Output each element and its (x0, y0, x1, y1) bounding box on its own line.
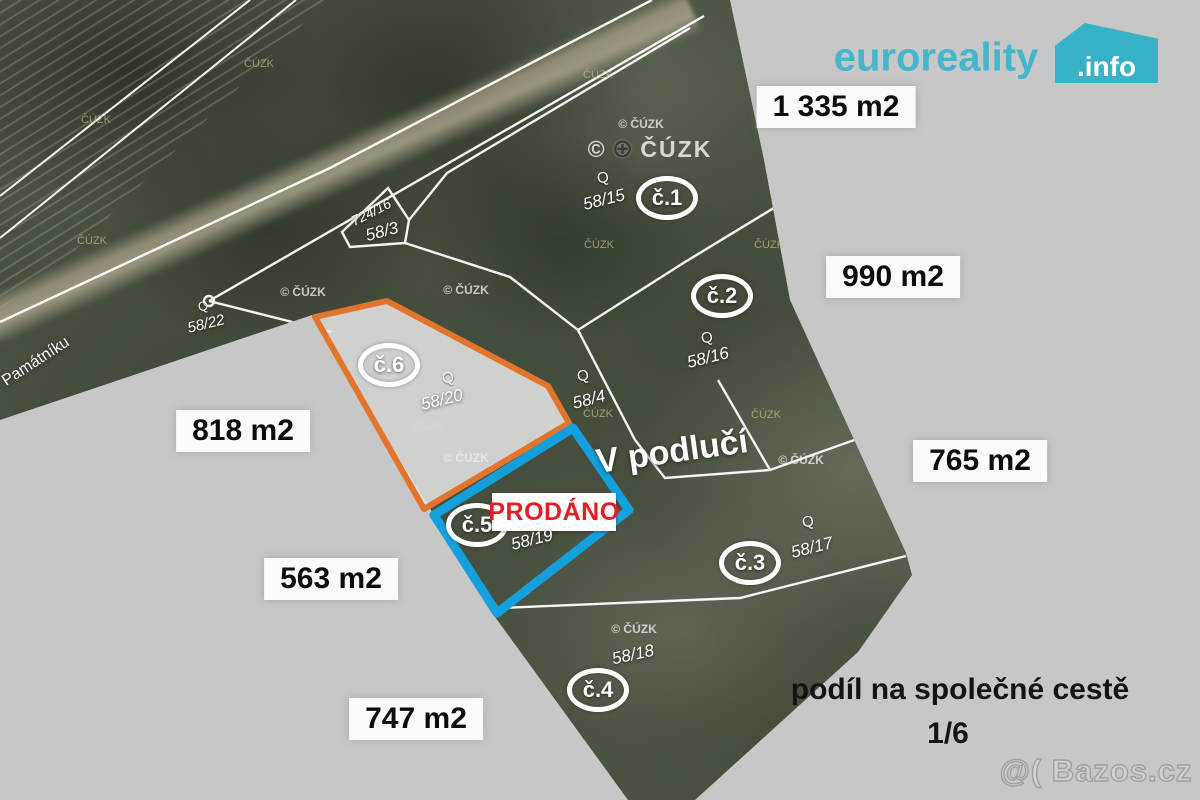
cuzk-watermark: © ČÚZK (443, 451, 489, 465)
globe-icon: ⊕ (612, 134, 636, 164)
listing-photo: ©⊕ČÚZK © ČÚZK © ČÚZK © ČÚZK © ČÚZK © ČÚZ… (0, 0, 1200, 800)
area-label: 818 m2 (176, 410, 310, 452)
cuzk-watermark: © ČÚZK (778, 453, 824, 467)
plot-circle-text: č.6 (374, 352, 405, 378)
cuzk-watermark: © ČÚZK (280, 285, 326, 299)
cuzk-watermark: ČÚZK (584, 239, 614, 251)
share-note-line2: 1/6 (927, 717, 969, 751)
plot-circle-label: č.1 (636, 176, 698, 220)
area-label: 1 335 m2 (757, 86, 916, 128)
cuzk-watermark: ČÚZK (583, 69, 613, 81)
share-note-line1: podíl na společné cestě (791, 673, 1129, 707)
cuzk-watermark: ČÚZK (754, 239, 784, 251)
cuzk-watermark: © ČÚZK (443, 283, 489, 297)
cuzk-watermark: © ČÚZK (618, 117, 664, 131)
cuzk-watermark: ČÚZK (244, 58, 274, 70)
plot-circle-label: č.2 (691, 274, 753, 318)
cuzk-watermark: ČÚZK (81, 114, 111, 126)
logo-euroreality-text: euroreality (834, 36, 1039, 81)
plot-circle-text: č.3 (735, 550, 766, 576)
area-label: 563 m2 (264, 558, 398, 600)
area-label: 990 m2 (826, 256, 960, 298)
logo-tld: .info (1077, 51, 1136, 83)
area-label: 747 m2 (349, 698, 483, 740)
cuzk-watermark: ČÚZK (77, 235, 107, 247)
cuzk-watermark: © ČÚZK (611, 622, 657, 636)
cuzk-watermark: ©⊕ČÚZK (588, 134, 713, 164)
sold-text: PRODÁNO (488, 498, 619, 527)
area-label: 765 m2 (913, 440, 1047, 482)
plot-circle-label: č.4 (567, 668, 629, 712)
plot-circle-label: č.6 (358, 343, 420, 387)
cuzk-text: ČÚZK (640, 136, 712, 163)
sold-badge: PRODÁNO (492, 493, 616, 531)
plot-circle-text: č.2 (707, 283, 738, 309)
bazos-watermark: @( Bazos.cz (1000, 753, 1193, 789)
cuzk-watermark: ČÚZK (413, 421, 444, 433)
copyright-symbol: © (588, 136, 607, 163)
plot-circle-text: č.1 (652, 185, 683, 211)
plot-circle-label: č.3 (719, 541, 781, 585)
plot-circle-text: č.4 (583, 677, 614, 703)
cuzk-watermark: ČÚZK (751, 409, 781, 421)
